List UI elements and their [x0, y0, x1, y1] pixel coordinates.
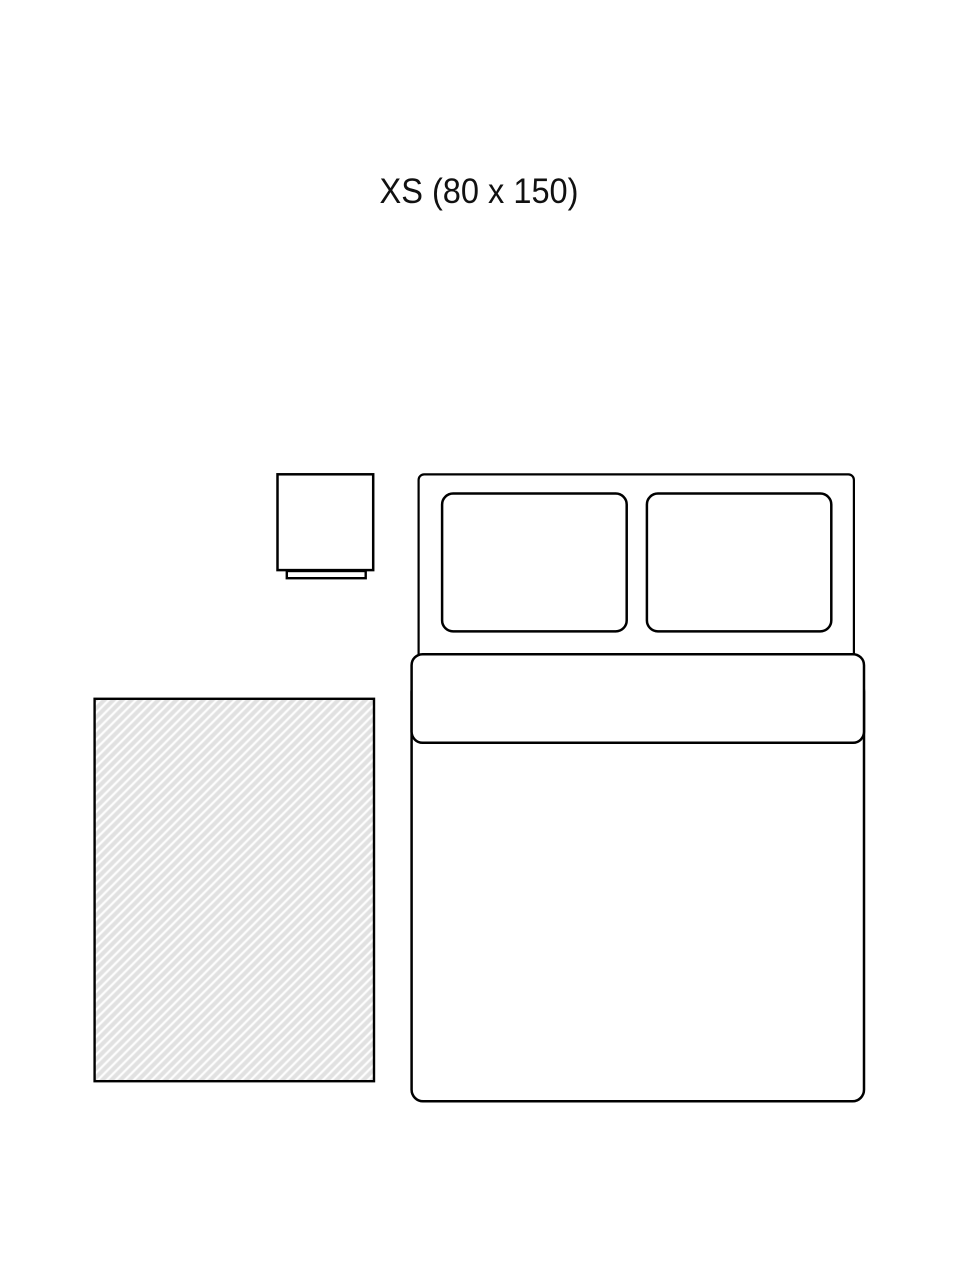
svg-text:XS (80 x 150): XS (80 x 150) [380, 171, 579, 211]
